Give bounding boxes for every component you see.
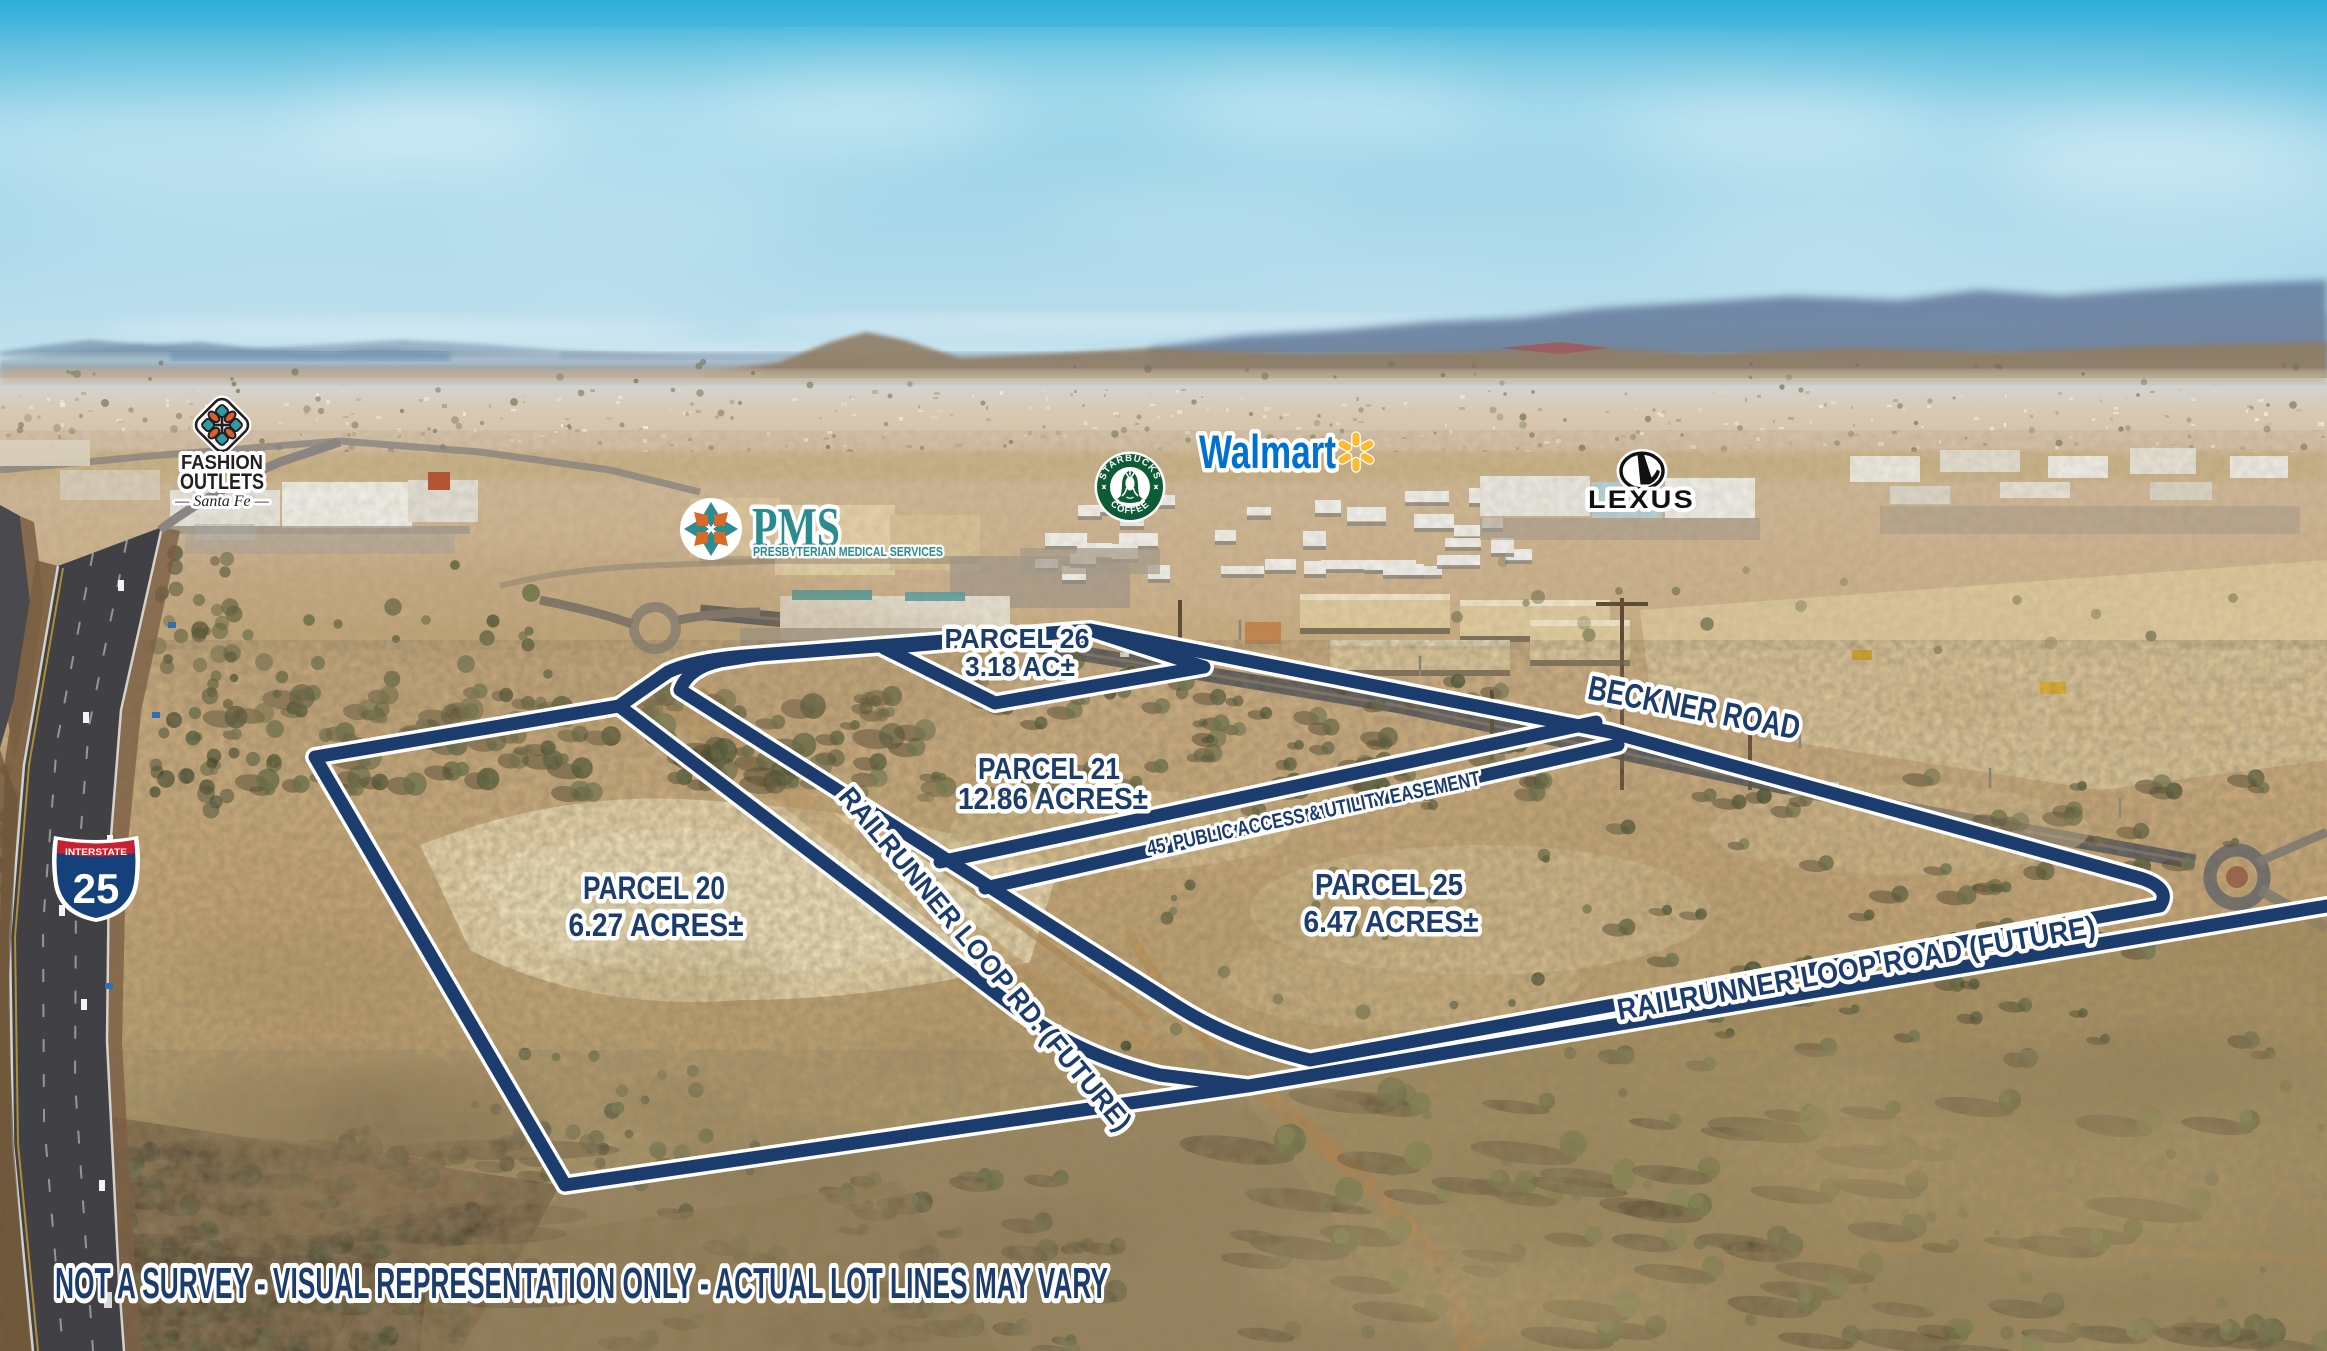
svg-text:Walmart: Walmart — [1199, 425, 1336, 478]
svg-text:INTERSTATE: INTERSTATE — [65, 847, 127, 857]
svg-text:NOT A SURVEY - VISUAL REPRESEN: NOT A SURVEY - VISUAL REPRESENTATION ONL… — [55, 1259, 1108, 1308]
svg-text:3.18 AC±: 3.18 AC± — [965, 651, 1075, 682]
svg-text:6.47 ACRES±: 6.47 ACRES± — [1304, 904, 1479, 939]
svg-text:PRESBYTERIAN MEDICAL SERVICES: PRESBYTERIAN MEDICAL SERVICES — [753, 545, 943, 559]
svg-text:PARCEL 20: PARCEL 20 — [583, 870, 725, 906]
svg-text:LEXUS: LEXUS — [1588, 486, 1695, 514]
svg-text:PARCEL 25: PARCEL 25 — [1315, 867, 1463, 902]
svg-text:25: 25 — [73, 865, 120, 912]
svg-text:PARCEL 26: PARCEL 26 — [945, 623, 1090, 654]
svg-text:6.27 ACRES±: 6.27 ACRES± — [569, 907, 744, 943]
svg-text:OUTLETS: OUTLETS — [180, 469, 264, 494]
svg-text:12.86 ACRES±: 12.86 ACRES± — [958, 781, 1148, 816]
svg-text:— Santa Fe —: — Santa Fe — — [174, 493, 270, 510]
